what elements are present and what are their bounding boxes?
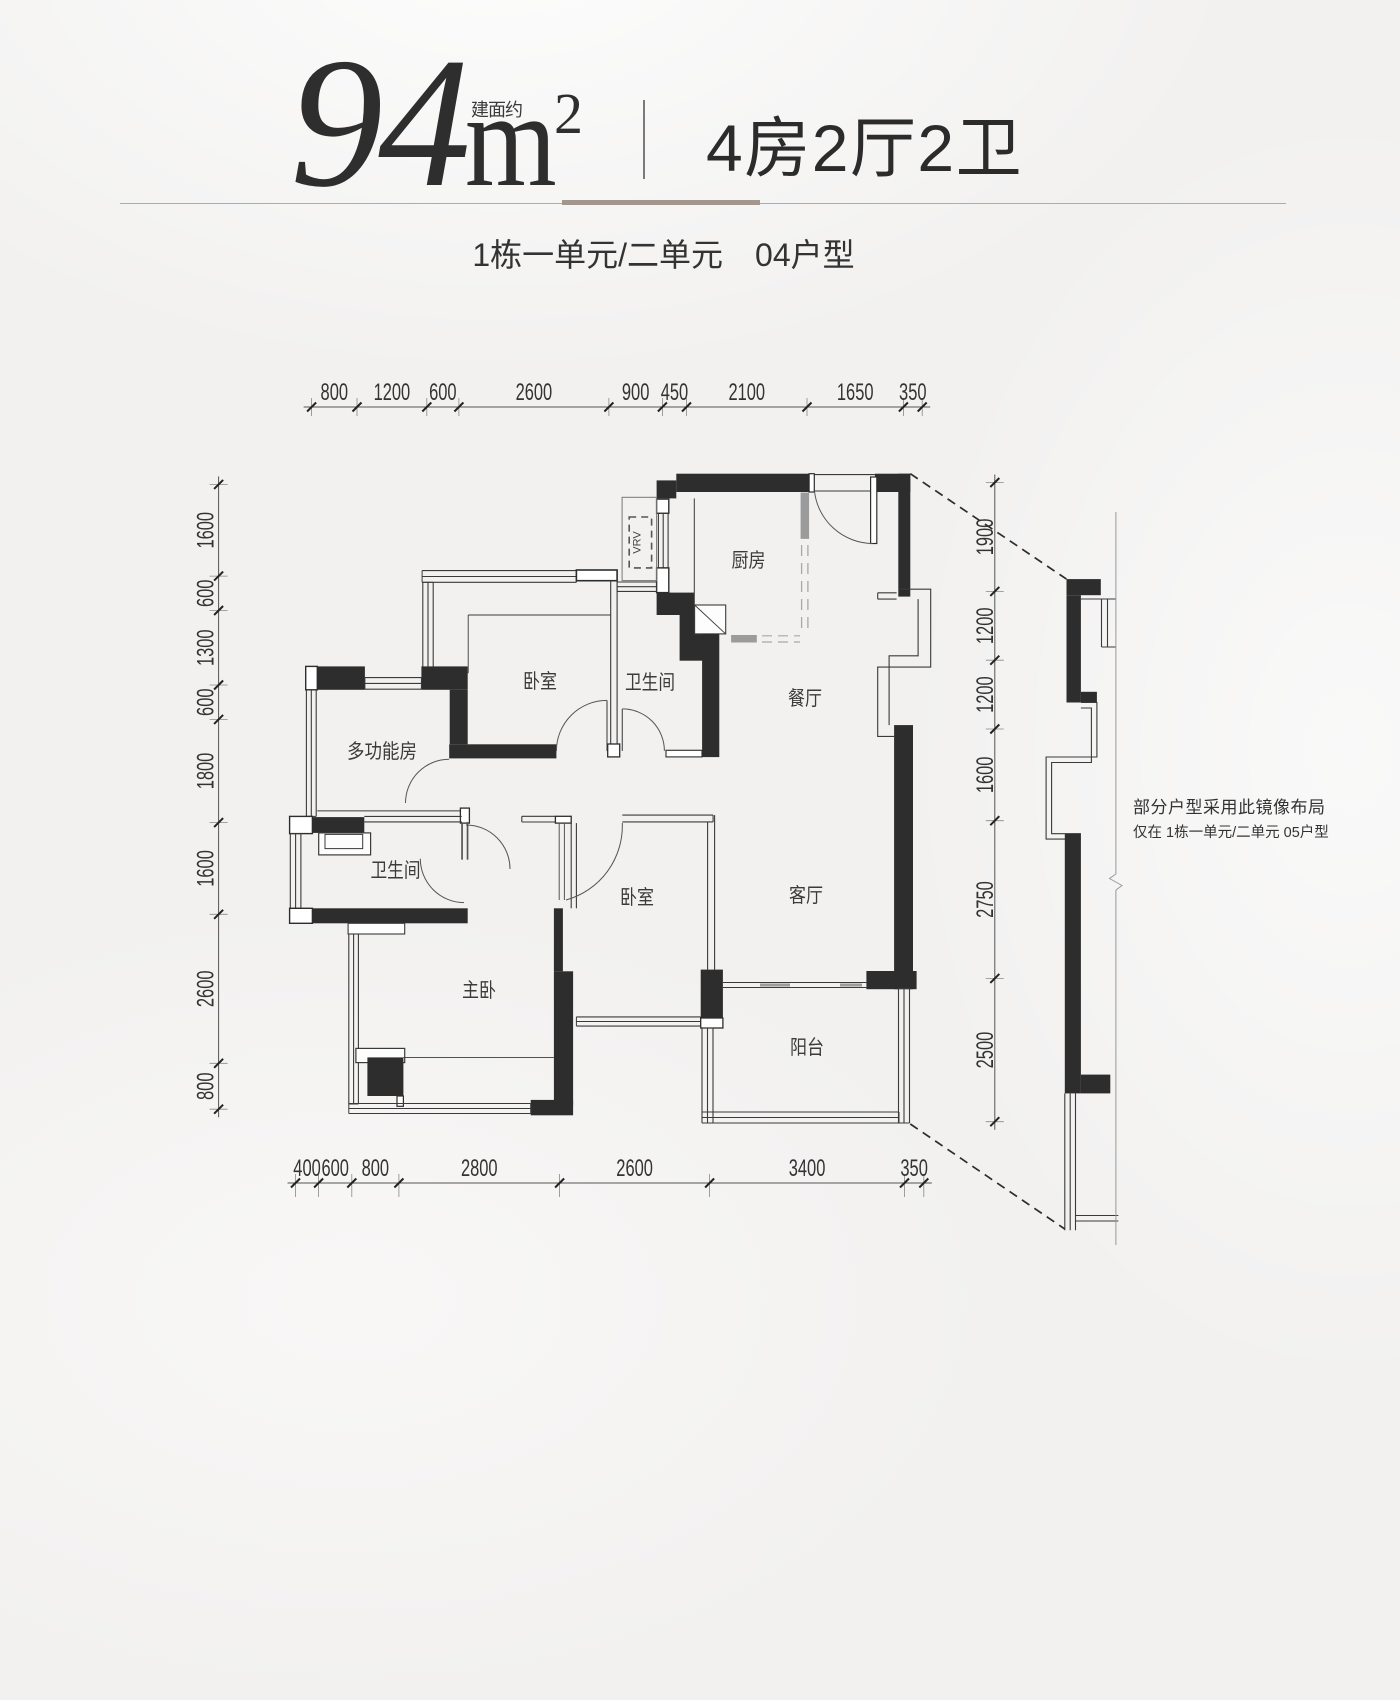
svg-text:部分户型采用此镜像布局: 部分户型采用此镜像布局: [1133, 798, 1326, 817]
svg-text:餐厅: 餐厅: [788, 687, 822, 710]
svg-text:2750: 2750: [972, 881, 999, 918]
svg-text:800: 800: [193, 1073, 220, 1101]
svg-text:1200: 1200: [972, 608, 999, 645]
svg-text:600: 600: [429, 379, 457, 406]
svg-text:2600: 2600: [616, 1155, 653, 1182]
svg-text:2500: 2500: [972, 1032, 999, 1069]
svg-text:1200: 1200: [972, 676, 999, 713]
svg-text:2600: 2600: [516, 379, 553, 406]
svg-text:600: 600: [321, 1155, 349, 1182]
svg-text:VRV: VRV: [631, 531, 643, 554]
svg-text:1600: 1600: [972, 757, 999, 794]
svg-text:阳台: 阳台: [790, 1036, 824, 1059]
svg-text:厨房: 厨房: [732, 549, 766, 572]
svg-text:卧室: 卧室: [523, 670, 557, 693]
svg-text:1600: 1600: [193, 512, 220, 549]
svg-text:1300: 1300: [193, 629, 220, 666]
svg-text:3400: 3400: [789, 1155, 826, 1182]
svg-text:800: 800: [321, 379, 349, 406]
svg-text:1650: 1650: [837, 379, 874, 406]
svg-text:2100: 2100: [728, 379, 765, 406]
svg-text:1200: 1200: [374, 379, 411, 406]
svg-text:1800: 1800: [193, 753, 220, 790]
svg-text:450: 450: [661, 379, 689, 406]
svg-text:多功能房: 多功能房: [347, 740, 417, 763]
svg-text:仅在 1栋一单元/二单元 05户型: 仅在 1栋一单元/二单元 05户型: [1133, 823, 1329, 841]
svg-text:600: 600: [193, 580, 220, 608]
svg-text:350: 350: [900, 1155, 928, 1182]
svg-text:900: 900: [622, 379, 650, 406]
svg-text:1900: 1900: [972, 519, 999, 556]
svg-text:600: 600: [193, 688, 220, 716]
svg-text:2800: 2800: [461, 1155, 498, 1182]
svg-text:800: 800: [362, 1155, 390, 1182]
svg-text:主卧: 主卧: [462, 979, 496, 1002]
svg-text:客厅: 客厅: [789, 884, 823, 907]
svg-text:卫生间: 卫生间: [625, 671, 675, 694]
svg-text:卫生间: 卫生间: [371, 859, 421, 882]
svg-text:400: 400: [293, 1155, 321, 1182]
svg-text:350: 350: [899, 379, 927, 406]
svg-text:1600: 1600: [193, 850, 220, 887]
svg-text:2600: 2600: [193, 971, 220, 1008]
svg-text:卧室: 卧室: [620, 886, 654, 909]
